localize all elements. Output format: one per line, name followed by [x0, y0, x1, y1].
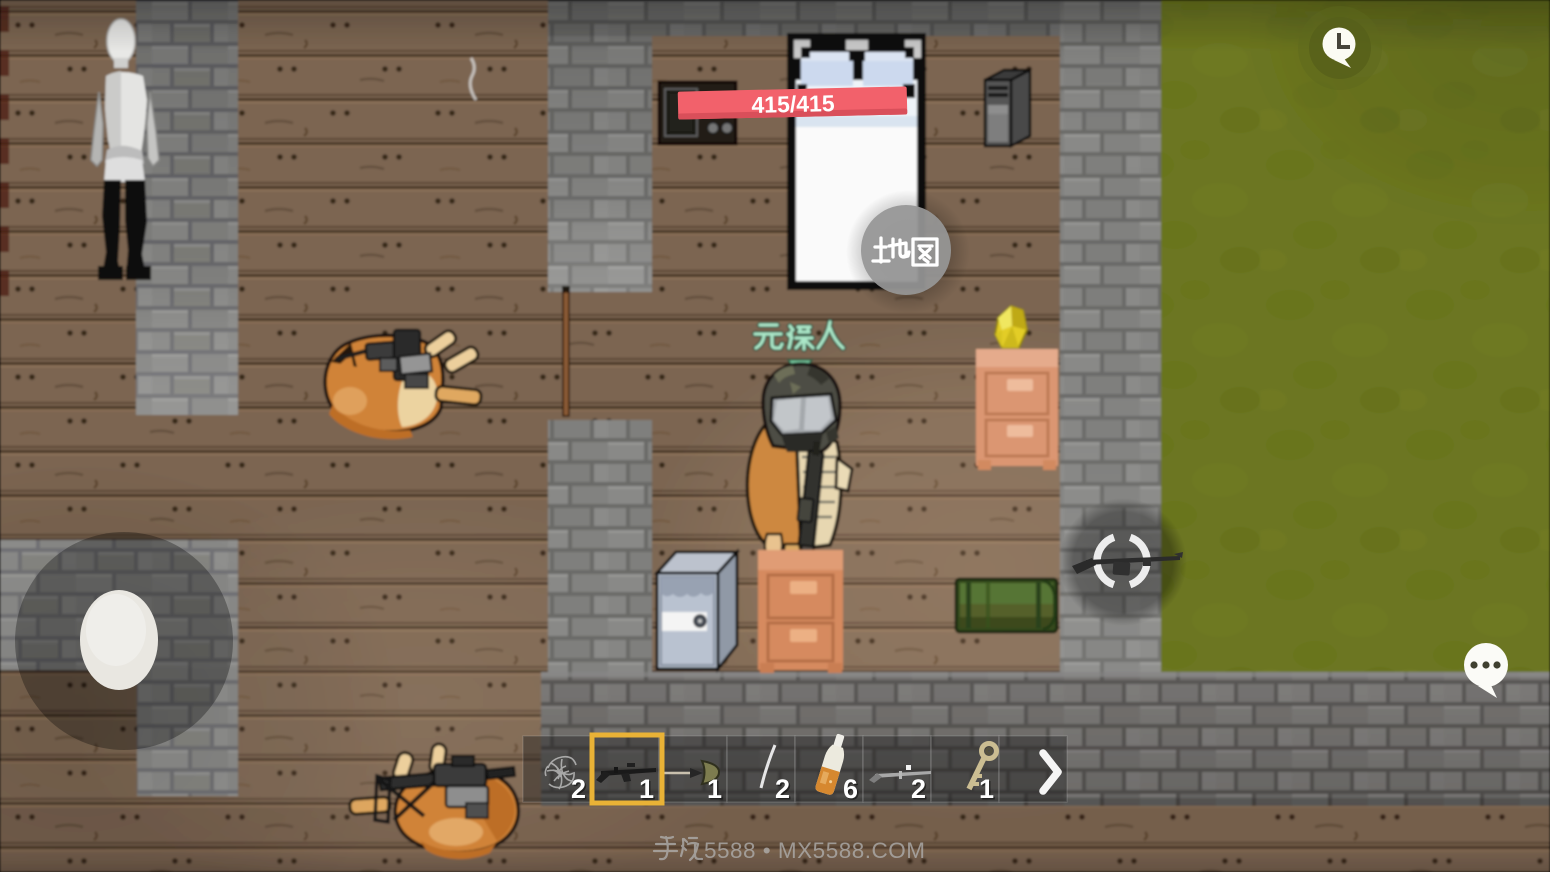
svg-text:415/415: 415/415 — [751, 90, 835, 118]
svg-text:2: 2 — [911, 774, 926, 804]
svg-text:5588 • MX5588.COM: 5588 • MX5588.COM — [704, 838, 925, 863]
svg-text:1: 1 — [707, 774, 722, 804]
svg-text:1: 1 — [639, 774, 654, 804]
svg-text:6: 6 — [843, 774, 858, 804]
svg-text:1: 1 — [979, 774, 994, 804]
svg-text:2: 2 — [775, 774, 790, 804]
svg-text:2: 2 — [571, 774, 586, 804]
